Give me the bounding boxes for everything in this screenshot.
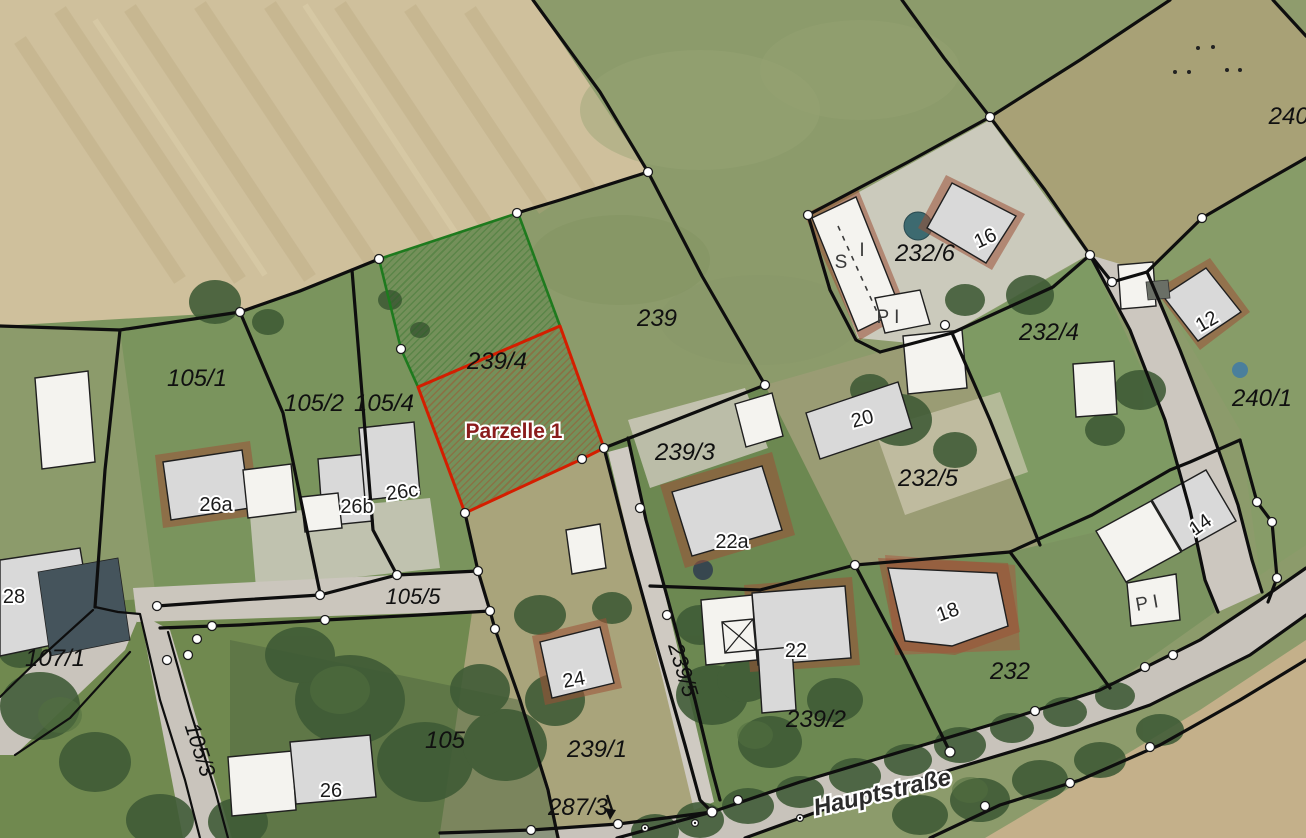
building-annotation-s: S xyxy=(835,252,848,273)
parcel-label-239-3: 239/3 xyxy=(654,439,716,466)
house-number-22: 22 xyxy=(785,640,807,662)
parcel-label-105-5: 105/5 xyxy=(385,584,441,609)
parcel-label-239-4: 239/4 xyxy=(466,348,527,375)
building-annotation-pi-2: P I xyxy=(1134,591,1160,616)
parcel-label-239: 239 xyxy=(636,305,677,332)
parcel-label-239-2: 239/2 xyxy=(785,706,846,733)
boundary-lines xyxy=(0,0,1306,838)
house-number-26a: 26a xyxy=(199,494,233,516)
parcel-label-105: 105 xyxy=(425,727,466,754)
house-number-26: 26 xyxy=(320,780,342,802)
parcel-label-232-6: 232/6 xyxy=(894,240,956,267)
cadastre-overlay: 105/1 105/2 105/4 105/5 105/3 105 107/1 … xyxy=(0,0,1306,838)
parcel-label-107-1: 107/1 xyxy=(25,645,85,672)
parcel-label-240-1: 240/1 xyxy=(1231,385,1292,412)
house-number-18: 18 xyxy=(934,598,962,626)
parcel-label-232-5: 232/5 xyxy=(897,465,959,492)
parcel-label-105-1: 105/1 xyxy=(167,365,227,392)
parcel-label-239-1: 239/1 xyxy=(566,736,627,763)
parcel-label-105-4: 105/4 xyxy=(354,390,414,417)
house-number-22a: 22a xyxy=(715,531,749,553)
parcel-label-232-4: 232/4 xyxy=(1018,319,1079,346)
vertex-markers xyxy=(153,113,1282,835)
point-symbols xyxy=(1173,45,1242,74)
house-number-26b: 26b xyxy=(340,496,373,518)
house-number-26c: 26c xyxy=(385,479,420,505)
selected-parcel-label: Parzelle 1 xyxy=(466,420,563,443)
parcel-label-105-3: 105/3 xyxy=(180,720,221,781)
house-number-28: 28 xyxy=(3,586,25,608)
parcel-label-105-2: 105/2 xyxy=(284,390,344,417)
parcel-label-287-3: 287/3 xyxy=(547,794,609,821)
house-number-16: 16 xyxy=(971,224,1000,253)
house-number-24: 24 xyxy=(561,667,587,693)
parcel-label-232: 232 xyxy=(989,658,1030,685)
cadastral-map-canvas[interactable]: 105/1 105/2 105/4 105/5 105/3 105 107/1 … xyxy=(0,0,1306,838)
house-number-12: 12 xyxy=(1192,307,1222,337)
parcel-label-240: 240/ xyxy=(1268,103,1306,130)
building-annotation-i: I xyxy=(859,240,864,261)
house-number-20: 20 xyxy=(849,406,876,433)
building-annotation-pi-1: P I xyxy=(877,307,900,328)
